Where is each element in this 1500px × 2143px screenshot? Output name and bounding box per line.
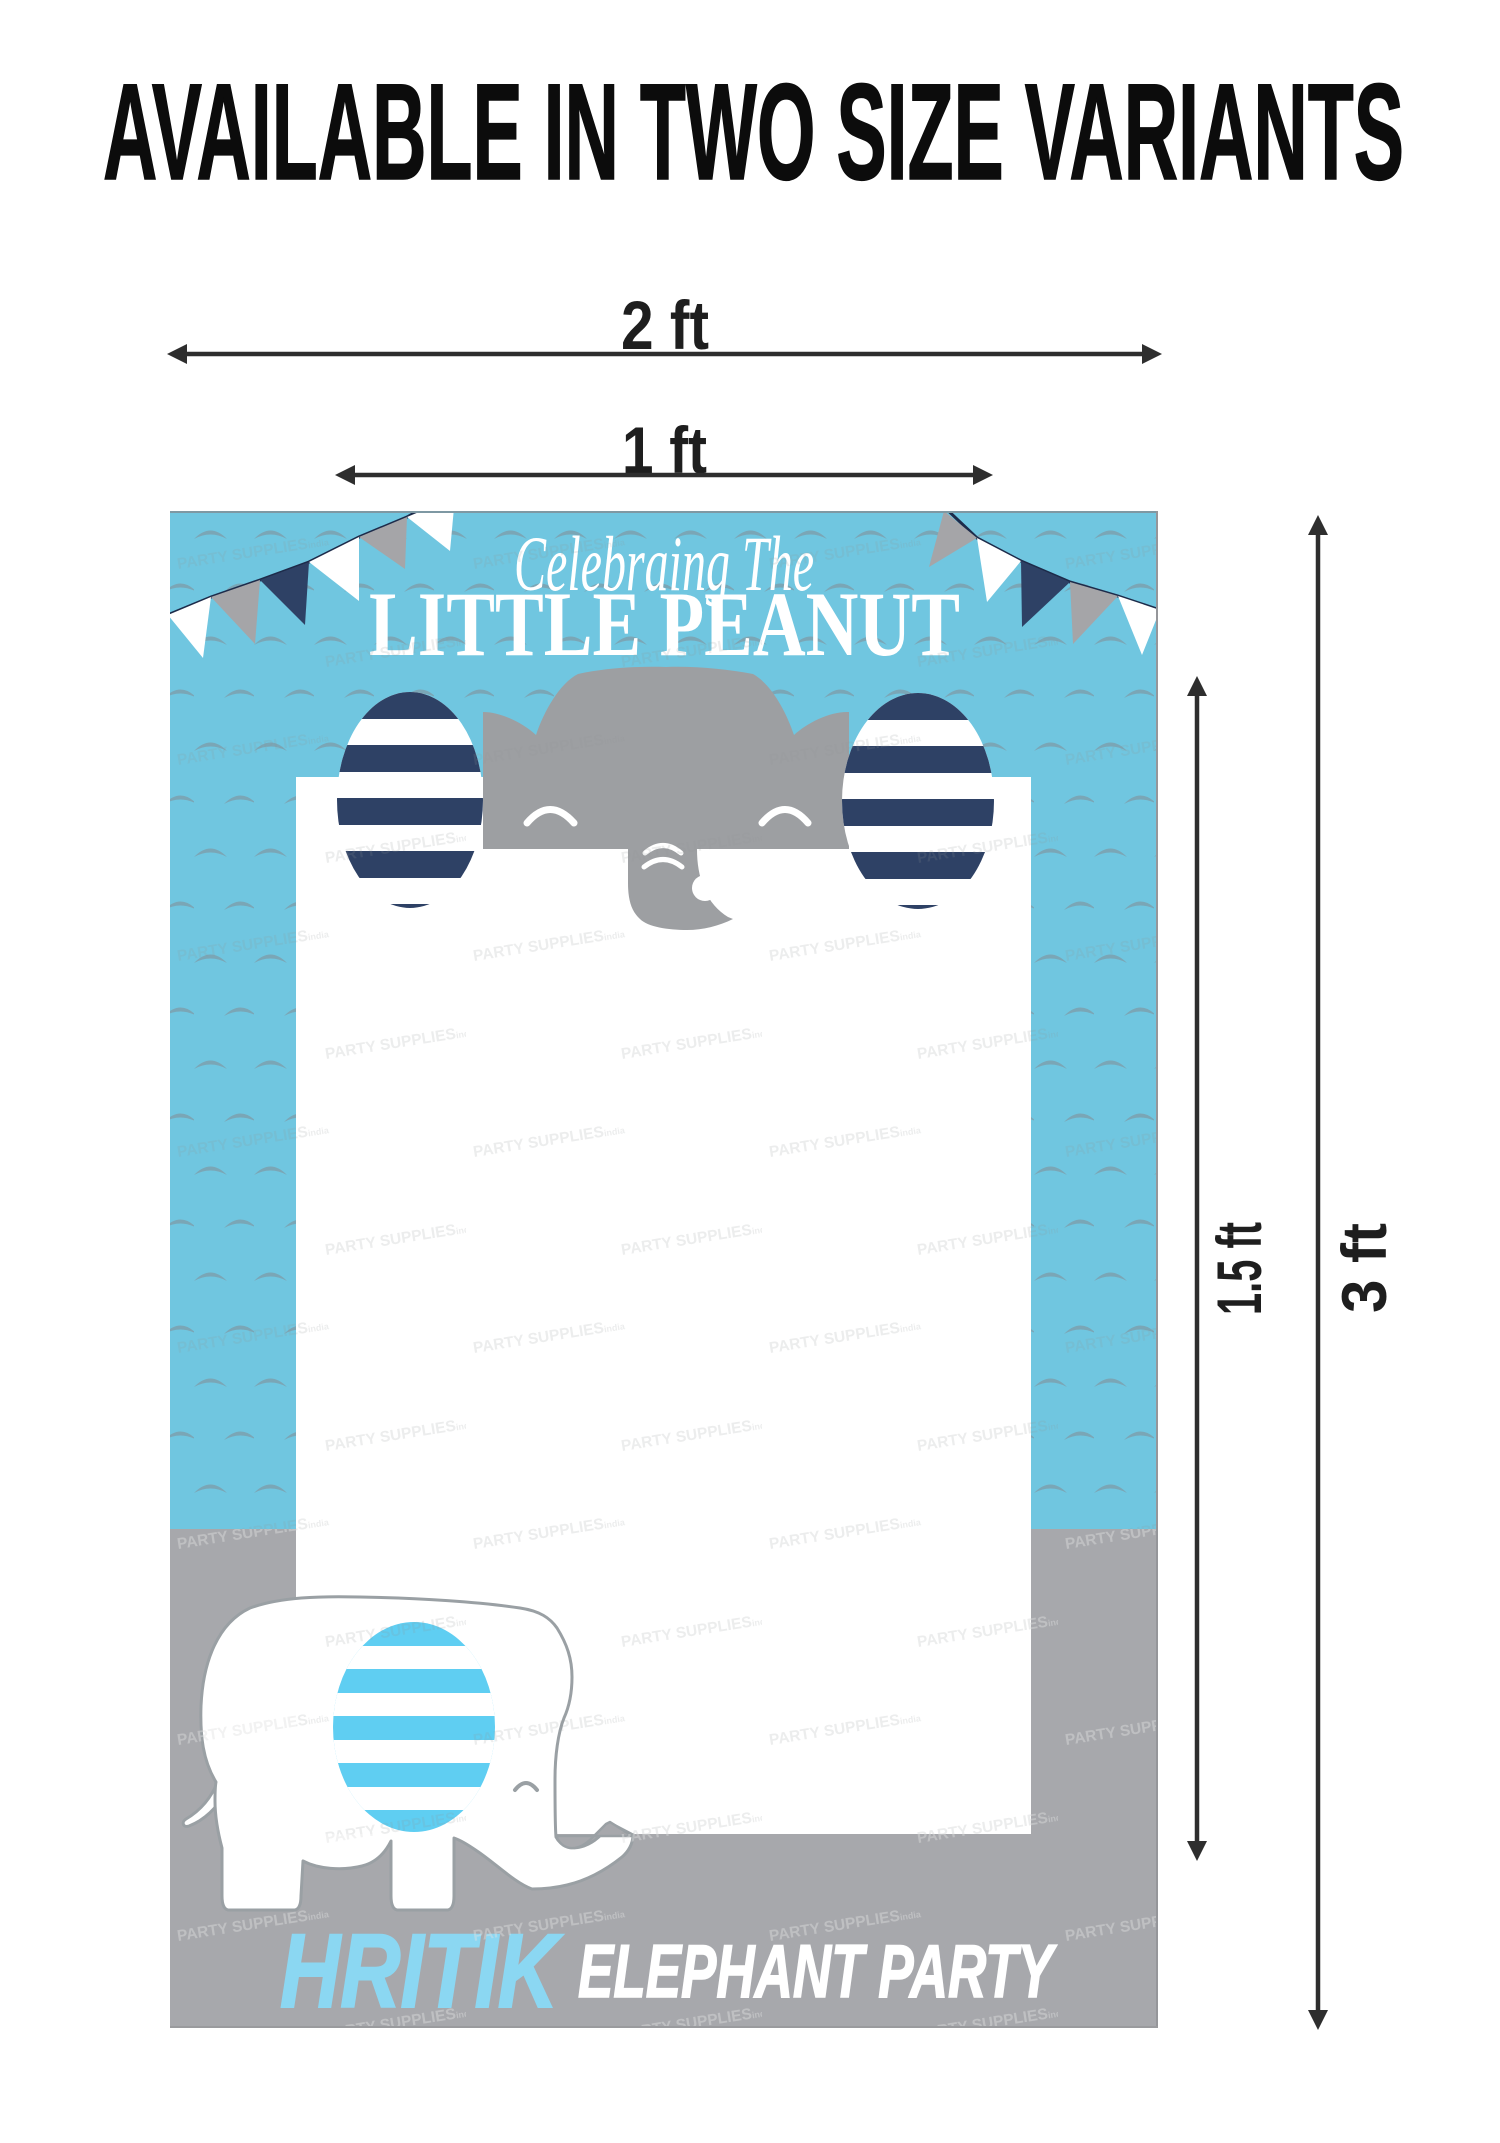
svg-text:1.5 ft: 1.5 ft [1205,1222,1275,1315]
svg-text:AVAILABLE IN TWO SIZE VARIANTS: AVAILABLE IN TWO SIZE VARIANTS [103,56,1404,209]
svg-text:3 ft: 3 ft [1330,1223,1400,1313]
